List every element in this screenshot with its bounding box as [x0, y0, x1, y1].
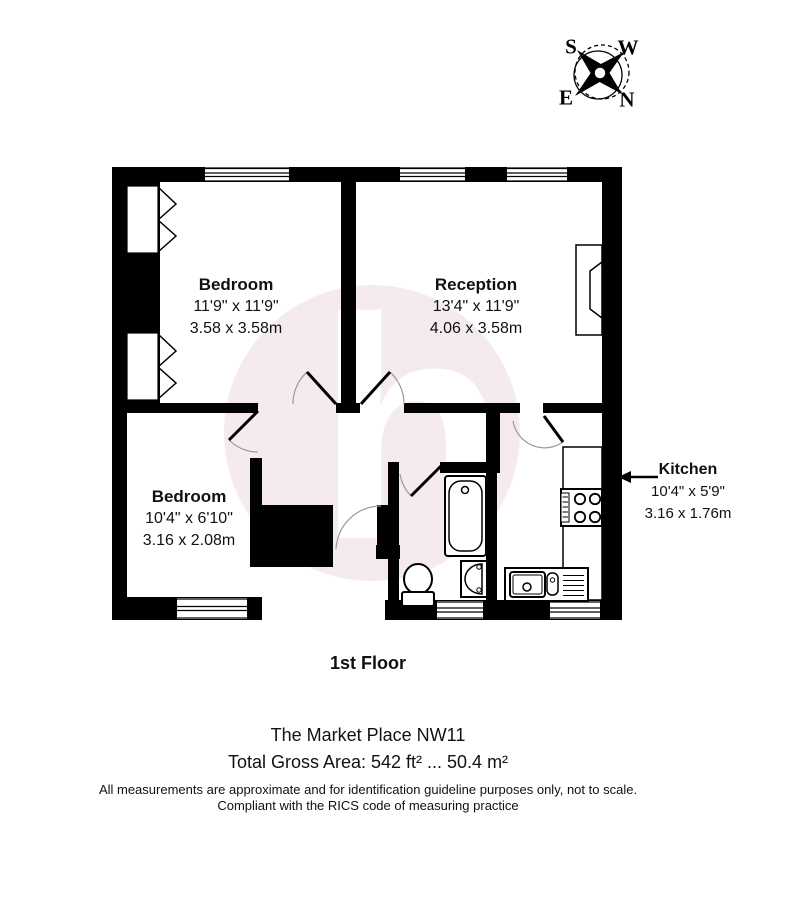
door-leaf-kitchen: [544, 416, 563, 442]
wall-mid-right: [404, 403, 520, 413]
entrance-door-leaf: [377, 505, 389, 549]
wall-divider: [341, 167, 356, 407]
wall-bath-left: [388, 462, 399, 620]
room-name: Bedroom: [89, 486, 289, 508]
room-dim-metric: 3.16 x 1.76m: [628, 503, 748, 525]
wall-mid-left: [112, 403, 258, 413]
wardrobe-recess-2: [127, 333, 158, 400]
kitchen-fittings: [505, 447, 602, 601]
fireplace-icon: [576, 245, 602, 335]
room-label-bedroom2: Bedroom 10'4" x 6'10" 3.16 x 2.08m: [89, 486, 289, 552]
room-dim-imperial: 10'4" x 6'10": [89, 508, 289, 530]
room-dim-imperial: 13'4" x 11'9": [376, 296, 576, 318]
room-dim-metric: 4.06 x 3.58m: [376, 318, 576, 340]
room-dim-metric: 3.58 x 3.58m: [136, 318, 336, 340]
wardrobe-doors-icon: [158, 187, 176, 252]
room-dim-imperial: 10'4" x 5'9": [628, 481, 748, 503]
wall-kitchen-top: [543, 403, 622, 413]
door-arc-kitchen: [513, 421, 563, 448]
hob-icon: [561, 489, 602, 526]
basin-icon: [461, 561, 487, 597]
room-label-reception: Reception 13'4" x 11'9" 4.06 x 3.58m: [376, 274, 576, 340]
wall-entrance-stub: [376, 545, 400, 559]
window-reception-top-1: [400, 168, 465, 182]
wall-left: [112, 167, 127, 620]
room-dim-metric: 3.16 x 2.08m: [89, 530, 289, 552]
wall-right: [602, 167, 622, 620]
wall-divider-foot: [336, 403, 360, 413]
room-label-kitchen: Kitchen 10'4" x 5'9" 3.16 x 1.76m: [628, 459, 748, 525]
floor-title: 1st Floor: [0, 653, 736, 674]
window-bedroom1-top: [205, 168, 289, 182]
disclaimer-line-2: Compliant with the RICS code of measurin…: [0, 798, 736, 813]
sink-drainer-icon: [505, 568, 588, 601]
window-bathroom-bottom: [437, 601, 483, 619]
room-label-bedroom1: Bedroom 11'9" x 11'9" 3.58 x 3.58m: [136, 274, 336, 340]
room-name: Bedroom: [136, 274, 336, 296]
room-dim-imperial: 11'9" x 11'9": [136, 296, 336, 318]
compass-letter-e: E: [559, 86, 573, 111]
room-name: Reception: [376, 274, 576, 296]
wardrobe-recess-1: [127, 186, 158, 253]
bathtub-icon: [445, 476, 486, 556]
disclaimer-line-1: All measurements are approximate and for…: [0, 782, 736, 797]
toilet-icon: [402, 564, 434, 606]
window-reception-top-2: [507, 168, 567, 182]
window-kitchen-bottom: [550, 601, 600, 619]
window-bedroom2-bottom: [177, 598, 247, 619]
compass-letter-s: S: [565, 35, 577, 60]
total-area-line: Total Gross Area: 542 ft² ... 50.4 m²: [0, 752, 736, 773]
floorplan-page: h: [0, 0, 803, 900]
compass-letter-n: N: [619, 88, 634, 113]
wardrobe-doors-icon: [158, 334, 176, 399]
compass-letter-w: W: [618, 36, 639, 61]
address-line: The Market Place NW11: [0, 725, 736, 746]
room-name: Kitchen: [628, 459, 748, 481]
